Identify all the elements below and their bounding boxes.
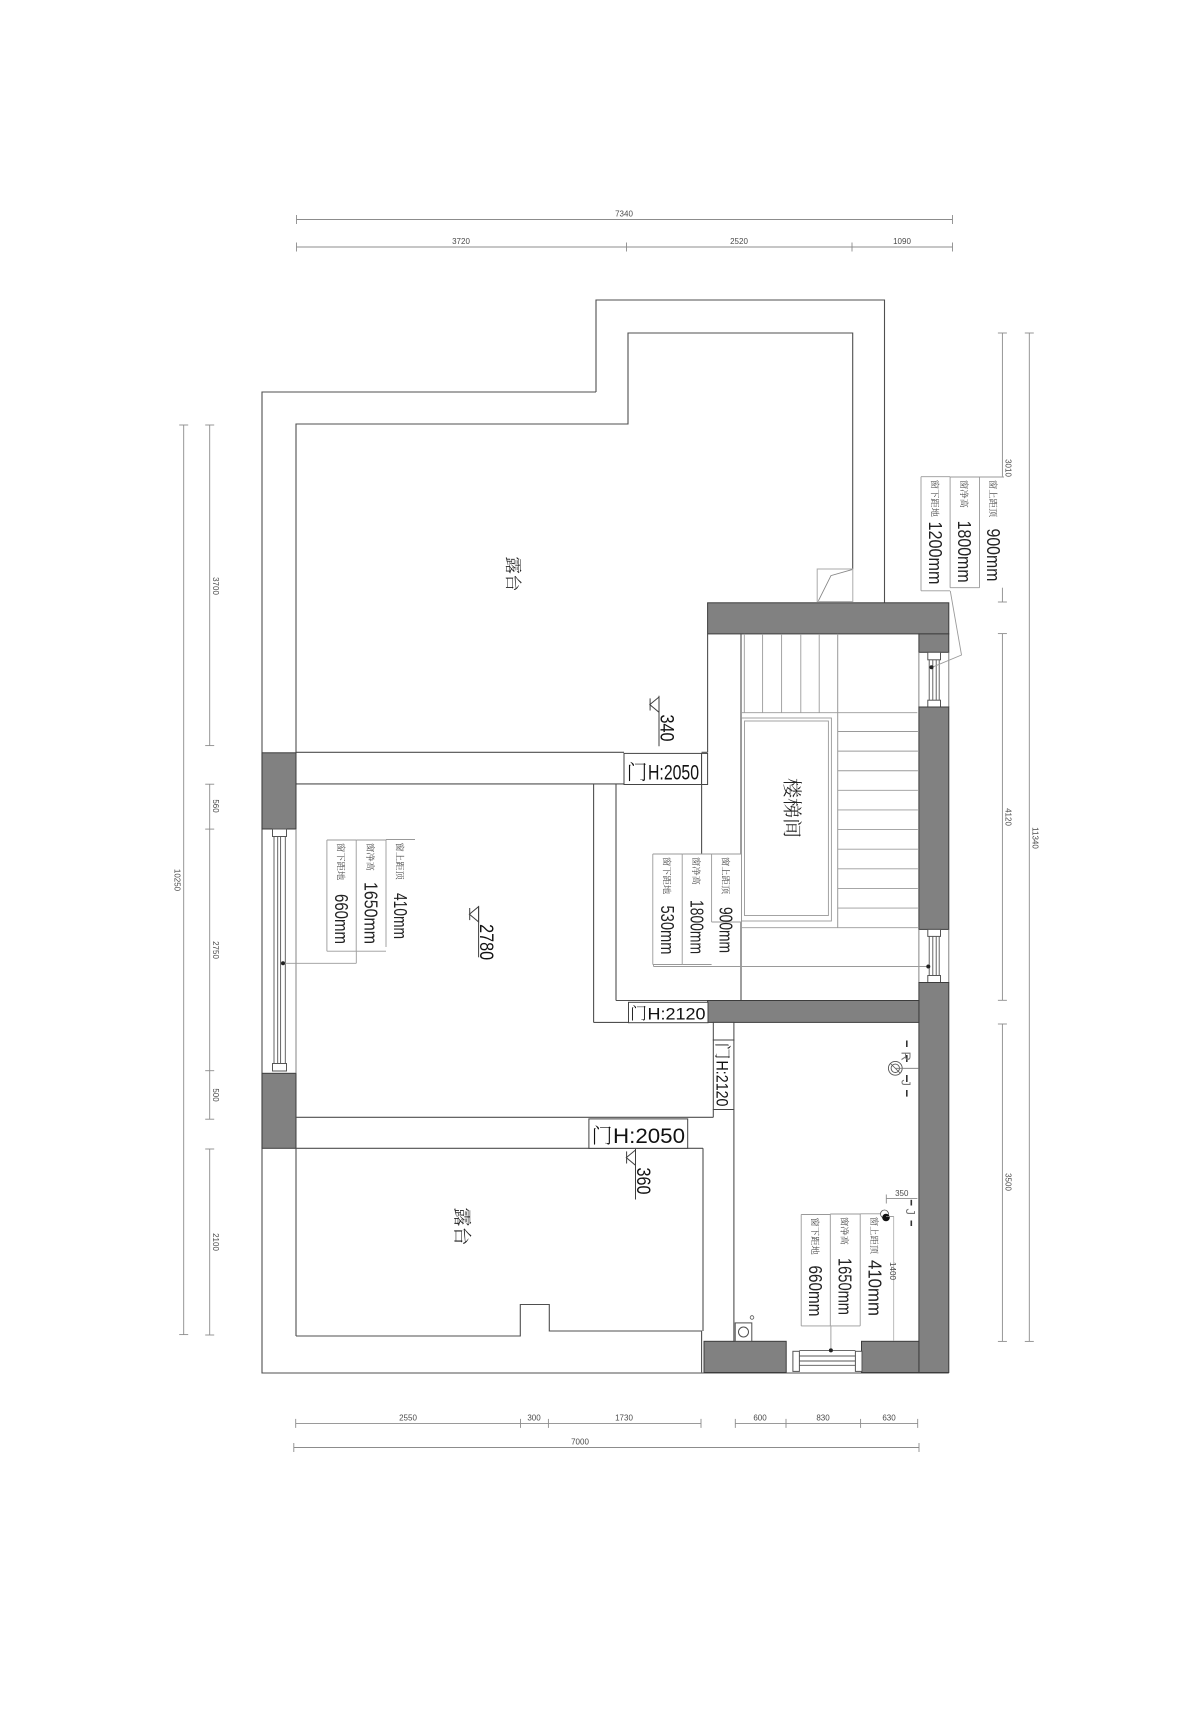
svg-text:600: 600: [753, 1413, 767, 1422]
svg-text:H:2120: H:2120: [713, 1061, 732, 1107]
svg-text:900mm: 900mm: [983, 529, 1003, 582]
svg-text:560: 560: [211, 799, 220, 813]
svg-text:2780: 2780: [475, 924, 496, 960]
svg-text:1800mm: 1800mm: [686, 900, 706, 954]
svg-text:H:2050: H:2050: [648, 762, 699, 785]
svg-text:7000: 7000: [571, 1438, 589, 1447]
svg-text:1650mm: 1650mm: [835, 1258, 855, 1315]
svg-text:1730: 1730: [615, 1413, 633, 1422]
svg-text:R: R: [899, 1052, 914, 1061]
svg-text:1400: 1400: [888, 1262, 897, 1281]
svg-text:H:2050: H:2050: [613, 1125, 685, 1148]
svg-text:3010: 3010: [1004, 459, 1013, 477]
svg-text:3720: 3720: [452, 237, 470, 246]
svg-text:1090: 1090: [893, 237, 911, 246]
svg-text:410mm: 410mm: [390, 893, 410, 939]
svg-text:2520: 2520: [730, 237, 748, 246]
svg-text:350: 350: [895, 1189, 909, 1198]
svg-text:500: 500: [211, 1088, 220, 1102]
svg-text:H:2120: H:2120: [648, 1004, 706, 1023]
svg-text:J: J: [899, 1080, 914, 1087]
svg-text:830: 830: [816, 1413, 830, 1422]
svg-text:7340: 7340: [615, 210, 633, 219]
svg-text:660mm: 660mm: [805, 1266, 825, 1317]
svg-text:4120: 4120: [1004, 808, 1013, 826]
svg-text:1650mm: 1650mm: [361, 882, 381, 944]
svg-text:2750: 2750: [211, 941, 220, 959]
svg-text:10250: 10250: [173, 869, 182, 892]
svg-text:3700: 3700: [211, 577, 220, 595]
svg-text:660mm: 660mm: [331, 894, 351, 944]
svg-text:2100: 2100: [211, 1233, 220, 1251]
svg-text:530mm: 530mm: [657, 906, 677, 955]
svg-text:300: 300: [527, 1413, 541, 1422]
svg-text:630: 630: [882, 1413, 896, 1422]
svg-text:340: 340: [656, 715, 677, 742]
svg-text:410mm: 410mm: [864, 1260, 884, 1316]
svg-text:1800mm: 1800mm: [954, 521, 974, 583]
svg-text:2550: 2550: [399, 1413, 417, 1422]
svg-text:900mm: 900mm: [716, 907, 736, 953]
svg-text:3500: 3500: [1004, 1173, 1013, 1191]
svg-text:11340: 11340: [1031, 827, 1040, 849]
svg-text:1200mm: 1200mm: [925, 522, 945, 585]
svg-text:J: J: [903, 1209, 918, 1216]
svg-text:360: 360: [632, 1168, 653, 1195]
